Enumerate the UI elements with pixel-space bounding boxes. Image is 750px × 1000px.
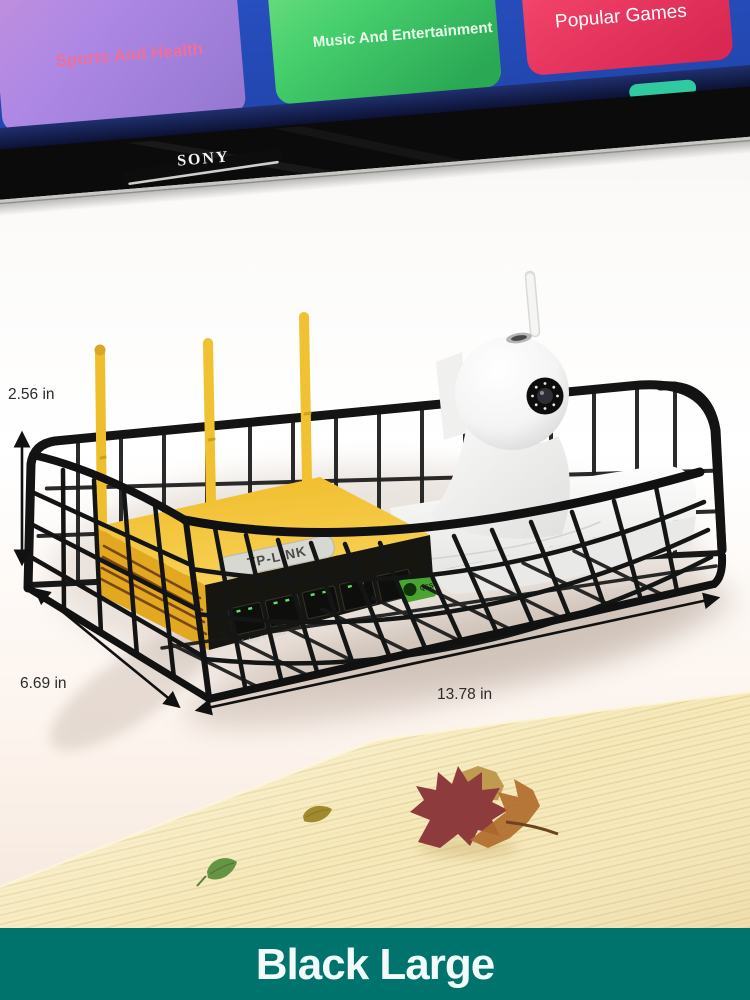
depth-dimension-label: 6.69 in xyxy=(20,675,67,692)
antenna-tip xyxy=(95,345,106,356)
product-photo: Sports And Health Music And Entertainmen… xyxy=(0,0,750,1000)
banner-label: Black Large xyxy=(256,940,494,989)
variant-banner: Black Large xyxy=(0,928,750,1000)
width-dimension-label: 13.78 in xyxy=(437,686,492,703)
height-dimension-label: 2.56 in xyxy=(8,386,55,403)
camera-lens xyxy=(527,378,564,415)
product-listing-image: Sports And Health Music And Entertainmen… xyxy=(0,0,750,1000)
